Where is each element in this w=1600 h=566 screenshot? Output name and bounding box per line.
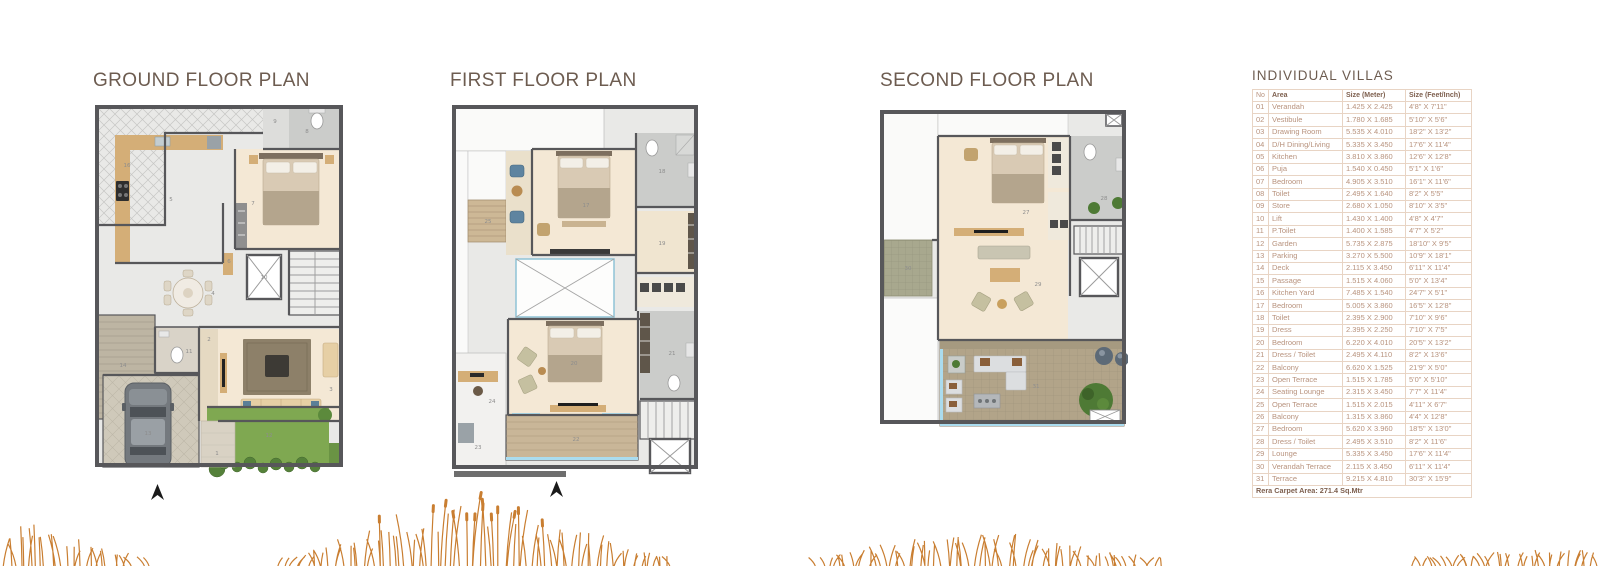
svg-text:11: 11 [186,349,193,355]
cell-no: 21 [1253,349,1269,361]
cell-area: Seating Lounge [1269,386,1343,398]
table-row: 15Passage1.515 X 4.0605'0" X 13'4" [1253,275,1472,287]
table-row: 29Lounge5.335 X 3.45017'6" X 11'4" [1253,448,1472,460]
cell-size-feet: 5'10" X 5'6" [1406,114,1472,126]
first-floor-plan-drawing: 251718192420212223 [450,103,700,480]
cell-size-feet: 21'9" X 5'0" [1406,362,1472,374]
table-row: 20Bedroom6.220 X 4.01020'5" X 13'2" [1253,337,1472,349]
svg-text:7: 7 [251,201,255,207]
car-icon [122,383,174,467]
cell-size-meter: 7.485 X 1.540 [1343,287,1406,299]
svg-text:19: 19 [659,241,666,247]
cell-area: Verandah [1269,101,1343,113]
cell-size-feet: 5'0" X 13'4" [1406,275,1472,287]
cell-size-meter: 1.515 X 2.015 [1343,399,1406,411]
svg-text:17: 17 [583,203,590,209]
first-floor-title: FIRST FLOOR PLAN [450,70,637,92]
cell-size-feet: 17'6" X 11'4" [1406,448,1472,460]
table-row: 12Garden5.735 X 2.87518'10" X 9'5" [1253,238,1472,250]
cell-no: 25 [1253,399,1269,411]
cell-area: Puja [1269,163,1343,175]
cell-area: Passage [1269,275,1343,287]
cell-size-feet: 8'2" X 13'6" [1406,349,1472,361]
cell-size-meter: 1.425 X 2.425 [1343,101,1406,113]
ground-floor-plan: 169857610414112313121 [93,103,345,485]
cell-size-feet: 20'5" X 13'2" [1406,337,1472,349]
cell-no: 14 [1253,262,1269,274]
ground-floor-plan-drawing: 169857610414112313121 [93,103,345,480]
cell-size-feet: 8'2" X 11'6" [1406,436,1472,448]
cell-size-feet: 7'10" X 9'6" [1406,312,1472,324]
svg-text:25: 25 [485,219,492,225]
cell-no: 28 [1253,436,1269,448]
cell-size-feet: 4'7" X 5'2" [1406,225,1472,237]
svg-text:4: 4 [211,291,215,297]
cell-no: 04 [1253,139,1269,151]
cell-size-meter: 1.780 X 1.685 [1343,114,1406,126]
cell-area: Bedroom [1269,300,1343,312]
cell-size-feet: 4'8" X 7'11" [1406,101,1472,113]
cell-area: Bedroom [1269,337,1343,349]
cell-area: Garden [1269,238,1343,250]
table-row: 11P.Toilet1.400 X 1.5854'7" X 5'2" [1253,225,1472,237]
cell-size-feet: 4'11" X 6'7" [1406,399,1472,411]
svg-text:10: 10 [261,275,268,281]
cell-area: Lift [1269,213,1343,225]
cell-size-meter: 5.535 X 4.010 [1343,126,1406,138]
cell-size-feet: 5'0" X 5'10" [1406,374,1472,386]
svg-text:28: 28 [1101,196,1108,202]
cell-no: 06 [1253,163,1269,175]
table-row: 01Verandah1.425 X 2.4254'8" X 7'11" [1253,101,1472,113]
individual-villas-panel: INDIVIDUAL VILLAS No Area Size (Meter) S… [1252,68,1474,498]
cell-no: 20 [1253,337,1269,349]
svg-text:23: 23 [475,445,482,451]
cell-size-meter: 1.315 X 3.860 [1343,411,1406,423]
cell-size-meter: 5.335 X 3.450 [1343,139,1406,151]
col-header-size-feet: Size (Feet/Inch) [1406,90,1472,102]
table-row: 04D/H Dining/Living5.335 X 3.45017'6" X … [1253,139,1472,151]
table-row: 06Puja1.540 X 0.4505'1" X 1'6" [1253,163,1472,175]
cell-no: 07 [1253,176,1269,188]
cell-no: 01 [1253,101,1269,113]
col-header-size-meter: Size (Meter) [1343,90,1406,102]
cell-area: P.Toilet [1269,225,1343,237]
cell-size-meter: 6.220 X 4.010 [1343,337,1406,349]
table-row: 05Kitchen3.810 X 3.86012'6" X 12'8" [1253,151,1472,163]
table-row: 09Store2.680 X 1.0508'10" X 3'5" [1253,200,1472,212]
table-row: 27Bedroom5.620 X 3.96018'5" X 13'0" [1253,423,1472,435]
table-row: 22Balcony6.620 X 1.52521'9" X 5'0" [1253,362,1472,374]
cell-area: Bedroom [1269,423,1343,435]
first-floor-plan: 251718192420212223 [450,103,700,485]
table-row: 28Dress / Toilet2.495 X 3.5108'2" X 11'6… [1253,436,1472,448]
cell-size-feet: 16'5" X 12'8" [1406,300,1472,312]
ground-floor-title: GROUND FLOOR PLAN [93,70,310,92]
table-header-row: No Area Size (Meter) Size (Feet/Inch) [1253,90,1472,102]
cell-area: Bedroom [1269,176,1343,188]
cell-size-feet: 6'11" X 11'4" [1406,262,1472,274]
second-floor-plan-drawing: 2728293031 [878,108,1128,480]
svg-text:16: 16 [124,163,131,169]
svg-text:12: 12 [266,433,273,439]
cell-area: Lounge [1269,448,1343,460]
second-floor-plan: 2728293031 [878,108,1128,485]
cell-size-feet: 24'7" X 5'1" [1406,287,1472,299]
cell-size-meter: 5.005 X 3.860 [1343,300,1406,312]
cell-area: Drawing Room [1269,126,1343,138]
cell-area: D/H Dining/Living [1269,139,1343,151]
cell-no: 16 [1253,287,1269,299]
cell-area: Store [1269,200,1343,212]
grass-decoration [0,478,1600,566]
table-row: 26Balcony1.315 X 3.8604'4" X 12'8" [1253,411,1472,423]
cell-size-meter: 1.400 X 1.585 [1343,225,1406,237]
cell-size-meter: 5.735 X 2.875 [1343,238,1406,250]
cell-size-meter: 2.115 X 3.450 [1343,461,1406,473]
cell-area: Deck [1269,262,1343,274]
cell-no: 18 [1253,312,1269,324]
cell-no: 24 [1253,386,1269,398]
svg-text:9: 9 [273,119,277,125]
cell-size-meter: 1.515 X 4.060 [1343,275,1406,287]
table-row: 25Open Terrace1.515 X 2.0154'11" X 6'7" [1253,399,1472,411]
svg-text:30: 30 [905,266,912,272]
cell-area: Open Terrace [1269,399,1343,411]
villas-tbody: 01Verandah1.425 X 2.4254'8" X 7'11"02Ves… [1253,101,1472,485]
table-row: 02Vestibule1.780 X 1.6855'10" X 5'6" [1253,114,1472,126]
cell-size-meter: 2.495 X 1.640 [1343,188,1406,200]
table-row: 21Dress / Toilet2.495 X 4.1108'2" X 13'6… [1253,349,1472,361]
svg-text:31: 31 [1033,384,1040,390]
cell-size-meter: 5.335 X 3.450 [1343,448,1406,460]
cell-no: 09 [1253,200,1269,212]
svg-text:29: 29 [1035,282,1042,288]
svg-text:5: 5 [169,197,173,203]
cell-no: 03 [1253,126,1269,138]
table-row: 24Seating Lounge2.315 X 3.4507'7" X 11'4… [1253,386,1472,398]
cell-size-feet: 8'10" X 3'5" [1406,200,1472,212]
cell-no: 17 [1253,300,1269,312]
table-row: 19Dress2.395 X 2.2507'10" X 7'5" [1253,324,1472,336]
table-row: 07Bedroom4.905 X 3.51016'1" X 11'6" [1253,176,1472,188]
cell-size-meter: 2.395 X 2.250 [1343,324,1406,336]
svg-text:1: 1 [215,451,219,457]
table-row: 08Toilet2.495 X 1.6408'2" X 5'5" [1253,188,1472,200]
cell-size-meter: 6.620 X 1.525 [1343,362,1406,374]
cell-size-meter: 2.395 X 2.900 [1343,312,1406,324]
villas-table: No Area Size (Meter) Size (Feet/Inch) 01… [1252,89,1472,498]
cell-no: 27 [1253,423,1269,435]
cell-area: Vestibule [1269,114,1343,126]
second-floor-title: SECOND FLOOR PLAN [880,70,1094,92]
cell-no: 05 [1253,151,1269,163]
villas-table-title: INDIVIDUAL VILLAS [1252,68,1474,83]
cell-no: 02 [1253,114,1269,126]
table-row: 30Verandah Terrace2.115 X 3.4506'11" X 1… [1253,461,1472,473]
table-row: 13Parking3.270 X 5.50010'9" X 18'1" [1253,250,1472,262]
cell-no: 15 [1253,275,1269,287]
cell-size-feet: 7'7" X 11'4" [1406,386,1472,398]
cell-no: 19 [1253,324,1269,336]
cell-no: 10 [1253,213,1269,225]
cell-size-meter: 1.540 X 0.450 [1343,163,1406,175]
cell-size-feet: 6'11" X 11'4" [1406,461,1472,473]
col-header-no: No [1253,90,1269,102]
brochure-page: GROUND FLOOR PLAN FIRST FLOOR PLAN SECON… [0,0,1600,566]
cell-size-feet: 17'6" X 11'4" [1406,139,1472,151]
svg-text:13: 13 [145,431,152,437]
cell-size-meter: 1.430 X 1.400 [1343,213,1406,225]
cell-size-feet: 12'6" X 12'8" [1406,151,1472,163]
svg-text:8: 8 [305,129,309,135]
table-row: 03Drawing Room5.535 X 4.01018'2" X 13'2" [1253,126,1472,138]
cell-area: Dress [1269,324,1343,336]
cell-size-feet: 5'1" X 1'6" [1406,163,1472,175]
svg-text:22: 22 [573,437,580,443]
cell-area: Verandah Terrace [1269,461,1343,473]
cell-no: 30 [1253,461,1269,473]
cell-size-meter: 3.270 X 5.500 [1343,250,1406,262]
cell-no: 08 [1253,188,1269,200]
cell-area: Toilet [1269,188,1343,200]
cell-no: 13 [1253,250,1269,262]
svg-text:2: 2 [207,337,211,343]
cell-no: 23 [1253,374,1269,386]
cell-size-feet: 7'10" X 7'5" [1406,324,1472,336]
cell-area: Balcony [1269,411,1343,423]
table-row: 23Open Terrace1.515 X 1.7855'0" X 5'10" [1253,374,1472,386]
cell-size-feet: 4'4" X 12'8" [1406,411,1472,423]
cell-size-meter: 3.810 X 3.860 [1343,151,1406,163]
cell-size-meter: 2.495 X 3.510 [1343,436,1406,448]
cell-size-meter: 2.495 X 4.110 [1343,349,1406,361]
svg-text:18: 18 [659,169,666,175]
svg-text:14: 14 [120,363,127,369]
cell-size-feet: 4'8" X 4'7" [1406,213,1472,225]
cell-size-feet: 18'2" X 13'2" [1406,126,1472,138]
cell-size-feet: 8'2" X 5'5" [1406,188,1472,200]
svg-text:3: 3 [329,387,333,393]
cell-size-meter: 1.515 X 1.785 [1343,374,1406,386]
cell-no: 26 [1253,411,1269,423]
table-row: 17Bedroom5.005 X 3.86016'5" X 12'8" [1253,300,1472,312]
table-row: 10Lift1.430 X 1.4004'8" X 4'7" [1253,213,1472,225]
cell-size-meter: 4.905 X 3.510 [1343,176,1406,188]
cell-area: Kitchen [1269,151,1343,163]
cell-no: 12 [1253,238,1269,250]
table-row: 16Kitchen Yard7.485 X 1.54024'7" X 5'1" [1253,287,1472,299]
cell-size-feet: 18'10" X 9'5" [1406,238,1472,250]
cell-size-meter: 2.680 X 1.050 [1343,200,1406,212]
cell-size-feet: 18'5" X 13'0" [1406,423,1472,435]
svg-text:27: 27 [1023,210,1030,216]
cell-area: Dress / Toilet [1269,349,1343,361]
cell-size-feet: 10'9" X 18'1" [1406,250,1472,262]
cell-area: Open Terrace [1269,374,1343,386]
cell-no: 11 [1253,225,1269,237]
cell-size-meter: 2.115 X 3.450 [1343,262,1406,274]
cell-area: Kitchen Yard [1269,287,1343,299]
cell-size-meter: 2.315 X 3.450 [1343,386,1406,398]
svg-text:21: 21 [669,351,676,357]
col-header-area: Area [1269,90,1343,102]
table-row: 18Toilet2.395 X 2.9007'10" X 9'6" [1253,312,1472,324]
cell-size-feet: 16'1" X 11'6" [1406,176,1472,188]
cell-area: Dress / Toilet [1269,436,1343,448]
cell-area: Parking [1269,250,1343,262]
cell-no: 29 [1253,448,1269,460]
cell-area: Toilet [1269,312,1343,324]
cell-no: 22 [1253,362,1269,374]
svg-text:6: 6 [227,259,231,265]
svg-text:20: 20 [571,361,578,367]
cell-size-meter: 5.620 X 3.960 [1343,423,1406,435]
table-row: 14Deck2.115 X 3.4506'11" X 11'4" [1253,262,1472,274]
cell-area: Balcony [1269,362,1343,374]
svg-text:24: 24 [489,399,496,405]
